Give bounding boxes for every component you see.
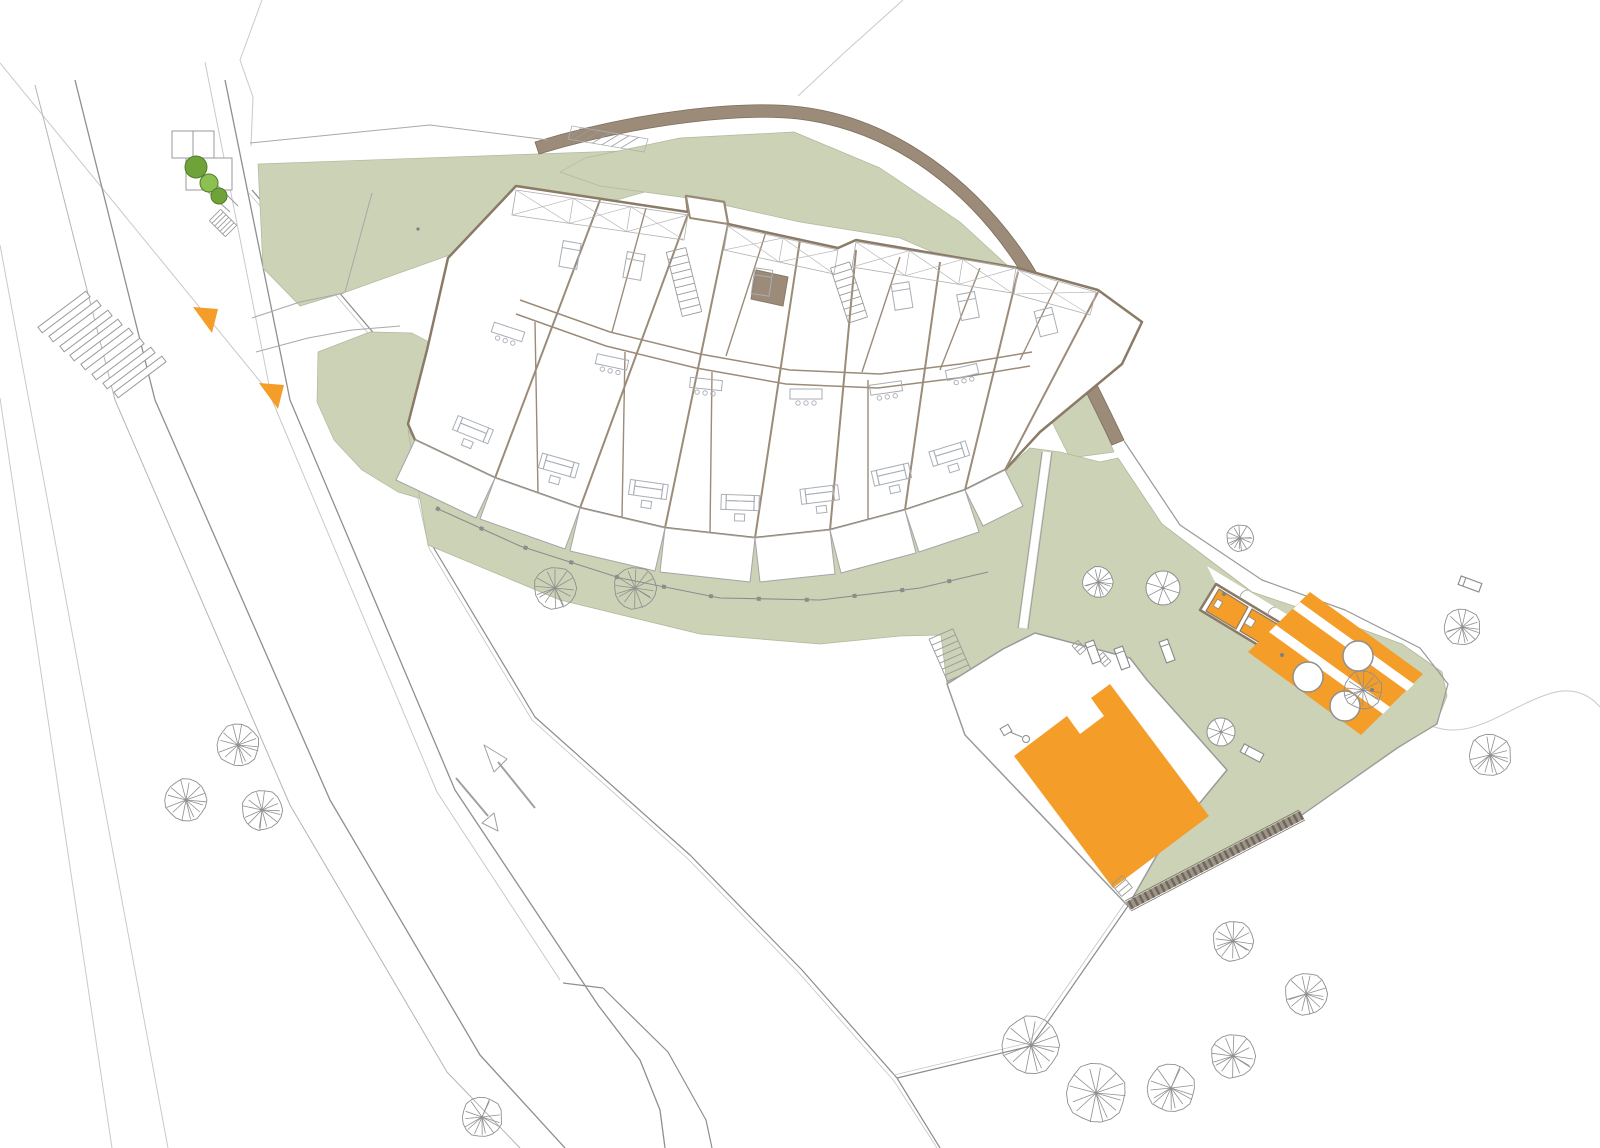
entrance-steps-line — [217, 217, 228, 228]
tree-spoke — [1171, 1069, 1180, 1088]
entrance-steps-line — [212, 212, 223, 223]
terrace — [755, 530, 835, 582]
parcel-line — [798, 0, 903, 96]
tree-spoke — [186, 800, 194, 817]
tree-spoke — [238, 745, 246, 762]
tree-spoke — [1233, 927, 1244, 941]
tree-spokes — [465, 1099, 500, 1135]
tree-spoke — [262, 810, 267, 827]
traffic-arrow-head — [482, 813, 498, 831]
entrance-steps-line — [223, 223, 234, 234]
tree-spoke — [482, 1115, 500, 1117]
entrance-steps-line — [225, 225, 236, 236]
parcel-line — [0, 63, 263, 385]
tree-spoke — [262, 803, 278, 810]
tree-spoke — [1096, 1093, 1107, 1118]
plaza-dot — [416, 227, 419, 230]
tree-spoke — [219, 745, 238, 752]
southeast-fence-echo — [894, 903, 1125, 1075]
road-junction-edge — [563, 983, 603, 988]
tree-spoke — [1024, 1017, 1031, 1045]
tree-spokes — [1470, 736, 1508, 774]
tree-spoke — [1154, 1088, 1171, 1103]
tree-spoke — [1233, 1039, 1247, 1056]
tree-spoke — [245, 810, 262, 817]
parcel-line — [0, 245, 168, 1148]
tree-spoke — [1306, 994, 1313, 1012]
entrance-tree-green — [185, 156, 207, 178]
tree-spoke — [1004, 1045, 1031, 1055]
tree-spoke — [238, 739, 256, 745]
entrance-steps-line — [215, 215, 226, 226]
parcel-line — [0, 398, 112, 1148]
tree-spoke — [1096, 1083, 1123, 1093]
entrance-steps-line — [209, 209, 220, 220]
outdoor-shower-head — [1023, 736, 1030, 743]
entrance-tree-green — [211, 188, 227, 204]
tree-spoke — [1490, 755, 1508, 762]
tree-spoke — [166, 800, 186, 807]
parcel-line — [240, 0, 262, 146]
site-plan-drawing — [0, 0, 1600, 1148]
tree-spoke — [468, 1117, 482, 1130]
tree-spoke — [1090, 1069, 1096, 1093]
tree-spoke — [186, 793, 205, 800]
parasol-pole — [1220, 731, 1223, 734]
tree-spoke — [257, 792, 262, 810]
parasol-pole — [1162, 587, 1165, 590]
tree-spoke — [1096, 1093, 1103, 1121]
tree-spoke — [1233, 1048, 1249, 1056]
tree-spoke — [1222, 1056, 1233, 1071]
access-lane-edge — [250, 125, 548, 143]
tree-spoke — [262, 791, 264, 810]
terrace — [660, 528, 755, 582]
tree-spoke — [1073, 1093, 1096, 1102]
traffic-arrow-shaft — [498, 762, 535, 808]
tree-spoke — [1233, 933, 1249, 941]
site-plan-canvas — [0, 0, 1600, 1148]
hot-tub — [1293, 662, 1323, 692]
tree-spoke — [233, 725, 238, 745]
tree-spokes — [1446, 610, 1479, 643]
tree-spoke — [1233, 1036, 1234, 1056]
tree-spoke — [181, 780, 186, 800]
spa-deck-dot — [1280, 653, 1284, 657]
road-branch-edge — [603, 988, 712, 1148]
hot-tub — [1343, 641, 1373, 671]
traffic-arrow-shaft — [456, 778, 488, 816]
entrance-steps — [209, 209, 236, 236]
tree-spoke — [1490, 736, 1495, 755]
tree-spoke — [555, 588, 556, 608]
spa-fixture-dot — [1222, 592, 1226, 596]
sun-lounger — [1458, 576, 1482, 592]
tree-spoke — [1151, 1081, 1171, 1088]
tree-spoke — [1158, 1069, 1171, 1088]
entrance-marker-triangle — [193, 307, 218, 333]
lounger-bed — [1458, 576, 1482, 592]
tree-spoke — [1233, 921, 1234, 941]
tree-spoke — [471, 1101, 482, 1117]
tree-spoke — [1462, 627, 1468, 641]
entrance-marker-triangle — [259, 383, 284, 409]
tree-spoke — [1171, 1085, 1193, 1088]
tree-spokes — [1150, 1066, 1192, 1110]
entrance-steps-line — [220, 220, 231, 231]
tree-spoke — [1031, 1045, 1037, 1071]
tree-spoke — [1031, 1045, 1042, 1068]
tree-spoke — [1222, 941, 1233, 956]
